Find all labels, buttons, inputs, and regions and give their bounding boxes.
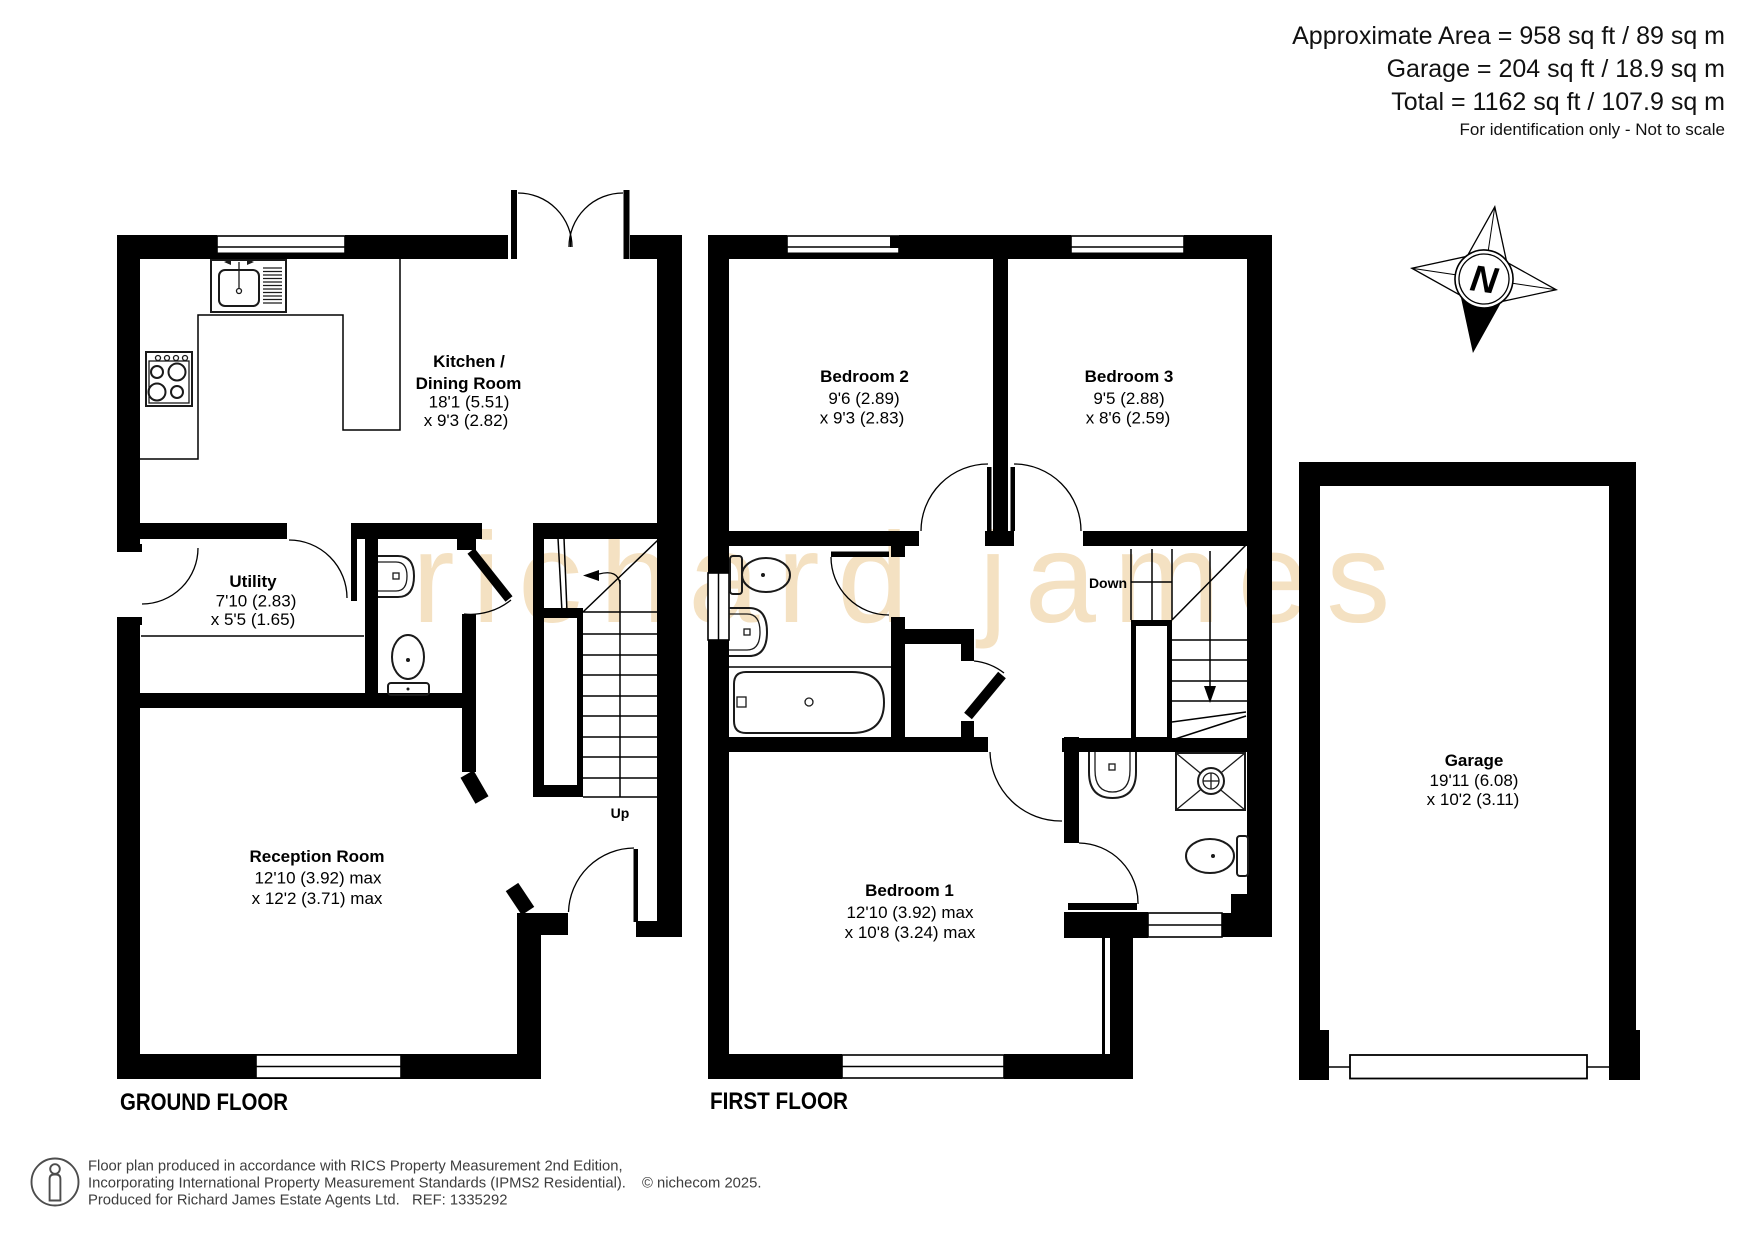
svg-text:12'10 (3.92) max: 12'10 (3.92) max [254, 869, 382, 888]
svg-text:x 8'6 (2.59): x 8'6 (2.59) [1086, 409, 1171, 428]
svg-text:9'6 (2.89): 9'6 (2.89) [828, 389, 899, 408]
svg-text:x 12'2 (3.71) max: x 12'2 (3.71) max [252, 889, 383, 908]
svg-text:© nichecom 2025.: © nichecom 2025. [642, 1176, 761, 1192]
svg-text:x 9'3 (2.82): x 9'3 (2.82) [424, 411, 509, 430]
svg-text:Garage = 204 sq ft / 18.9 sq m: Garage = 204 sq ft / 18.9 sq m [1387, 55, 1725, 83]
svg-text:12'10 (3.92) max: 12'10 (3.92) max [846, 903, 974, 922]
svg-text:Total = 1162 sq ft / 107.9 sq: Total = 1162 sq ft / 107.9 sq m [1391, 88, 1725, 116]
svg-text:Incorporating International Pr: Incorporating International Property Mea… [88, 1176, 626, 1192]
svg-text:x 9'3 (2.83): x 9'3 (2.83) [820, 409, 905, 428]
svg-text:FIRST FLOOR: FIRST FLOOR [710, 1088, 848, 1115]
svg-text:9'5 (2.88): 9'5 (2.88) [1093, 389, 1164, 408]
svg-text:x 5'5 (1.65): x 5'5 (1.65) [211, 610, 296, 629]
svg-text:Up: Up [611, 805, 630, 821]
svg-text:GROUND FLOOR: GROUND FLOOR [120, 1089, 288, 1116]
svg-text:Approximate Area = 958 sq ft /: Approximate Area = 958 sq ft / 89 sq m [1292, 22, 1725, 50]
svg-text:x 10'8 (3.24) max: x 10'8 (3.24) max [845, 923, 976, 942]
svg-text:Produced for Richard James Est: Produced for Richard James Estate Agents… [88, 1193, 507, 1209]
svg-text:For identification only - Not: For identification only - Not to scale [1459, 120, 1725, 139]
svg-text:Garage: Garage [1445, 751, 1504, 770]
svg-text:Bedroom 3: Bedroom 3 [1085, 367, 1174, 386]
svg-text:7'10 (2.83): 7'10 (2.83) [216, 592, 297, 611]
svg-text:18'1 (5.51): 18'1 (5.51) [429, 393, 510, 412]
svg-text:19'11 (6.08): 19'11 (6.08) [1430, 771, 1519, 790]
svg-text:Bedroom 2: Bedroom 2 [820, 367, 909, 386]
svg-text:Kitchen /: Kitchen / [433, 352, 505, 371]
svg-text:x 10'2 (3.11): x 10'2 (3.11) [1427, 790, 1520, 809]
svg-text:Reception Room: Reception Room [249, 847, 384, 866]
svg-text:Utility: Utility [229, 572, 277, 591]
svg-text:Dining Room: Dining Room [416, 374, 522, 393]
svg-text:Bedroom 1: Bedroom 1 [865, 881, 954, 900]
svg-text:Floor plan produced in accorda: Floor plan produced in accordance with R… [88, 1159, 623, 1175]
svg-text:Down: Down [1089, 575, 1127, 591]
